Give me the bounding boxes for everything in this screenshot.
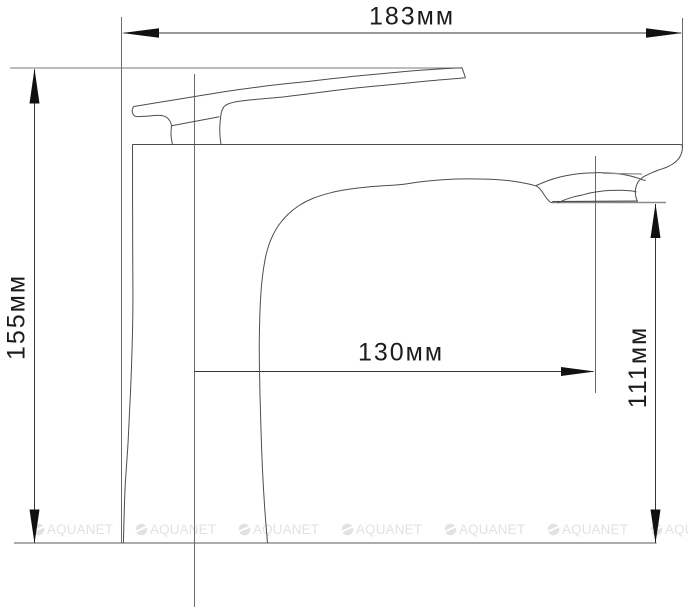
svg-text:AQUANET: AQUANET bbox=[47, 522, 113, 537]
svg-text:AQUANET: AQUANET bbox=[253, 522, 319, 537]
svg-text:AQUANET: AQUANET bbox=[459, 522, 525, 537]
svg-text:AQUANET: AQUANET bbox=[562, 522, 628, 537]
svg-text:155мм: 155мм bbox=[3, 274, 31, 360]
svg-text:183мм: 183мм bbox=[369, 3, 455, 31]
svg-text:AQUANET: AQUANET bbox=[665, 522, 688, 537]
svg-text:AQUANET: AQUANET bbox=[356, 522, 422, 537]
svg-text:130мм: 130мм bbox=[358, 339, 444, 367]
svg-text:111мм: 111мм bbox=[624, 326, 652, 408]
svg-text:AQUANET: AQUANET bbox=[150, 522, 216, 537]
